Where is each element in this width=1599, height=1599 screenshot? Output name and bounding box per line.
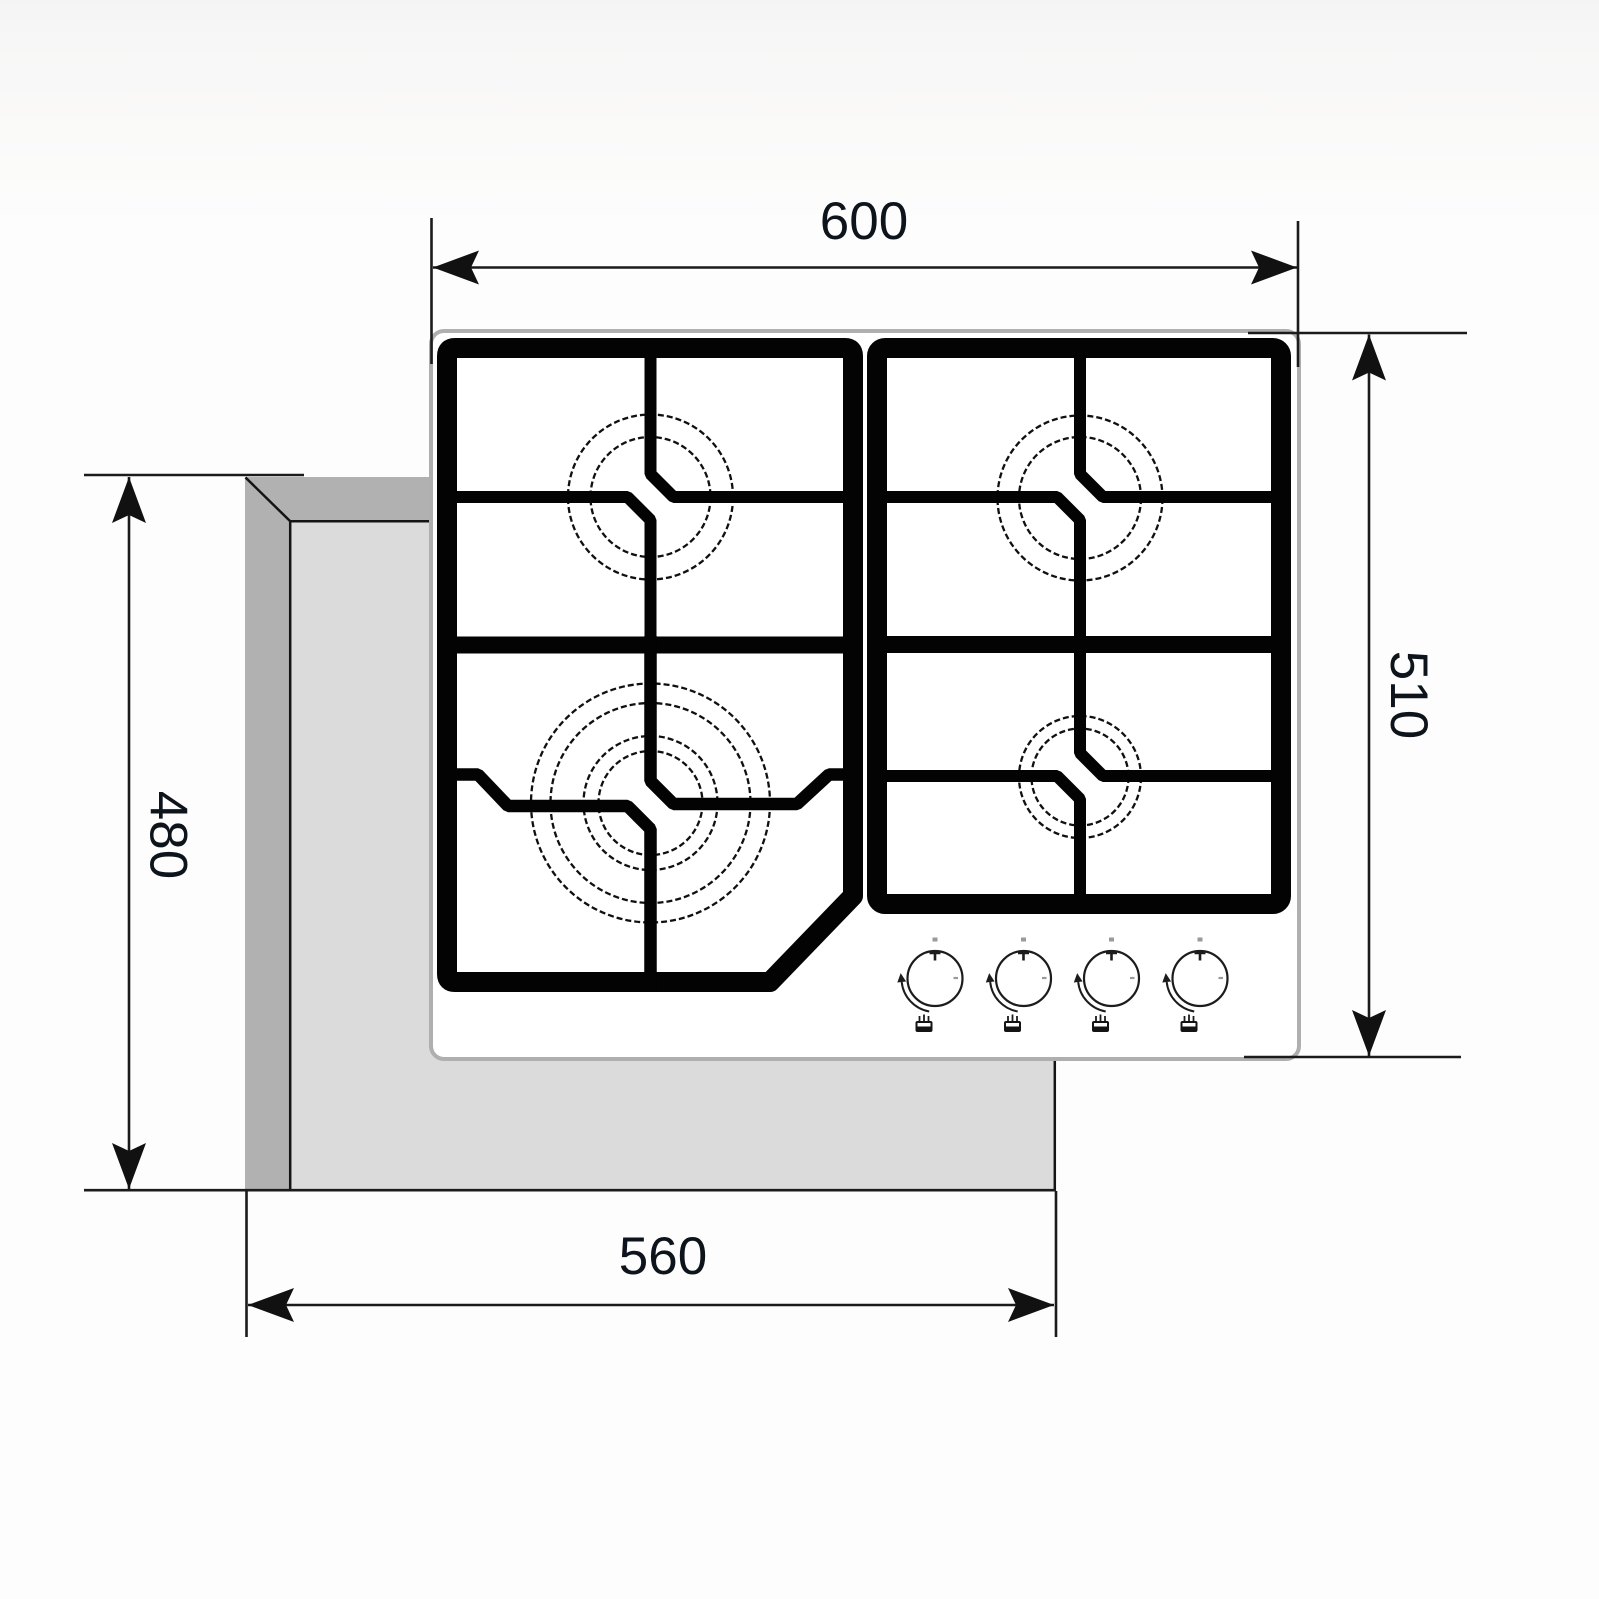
svg-text:510: 510 (1379, 651, 1438, 739)
svg-text:600: 600 (820, 192, 908, 251)
svg-text:480: 480 (139, 791, 198, 879)
svg-text:560: 560 (619, 1227, 707, 1286)
